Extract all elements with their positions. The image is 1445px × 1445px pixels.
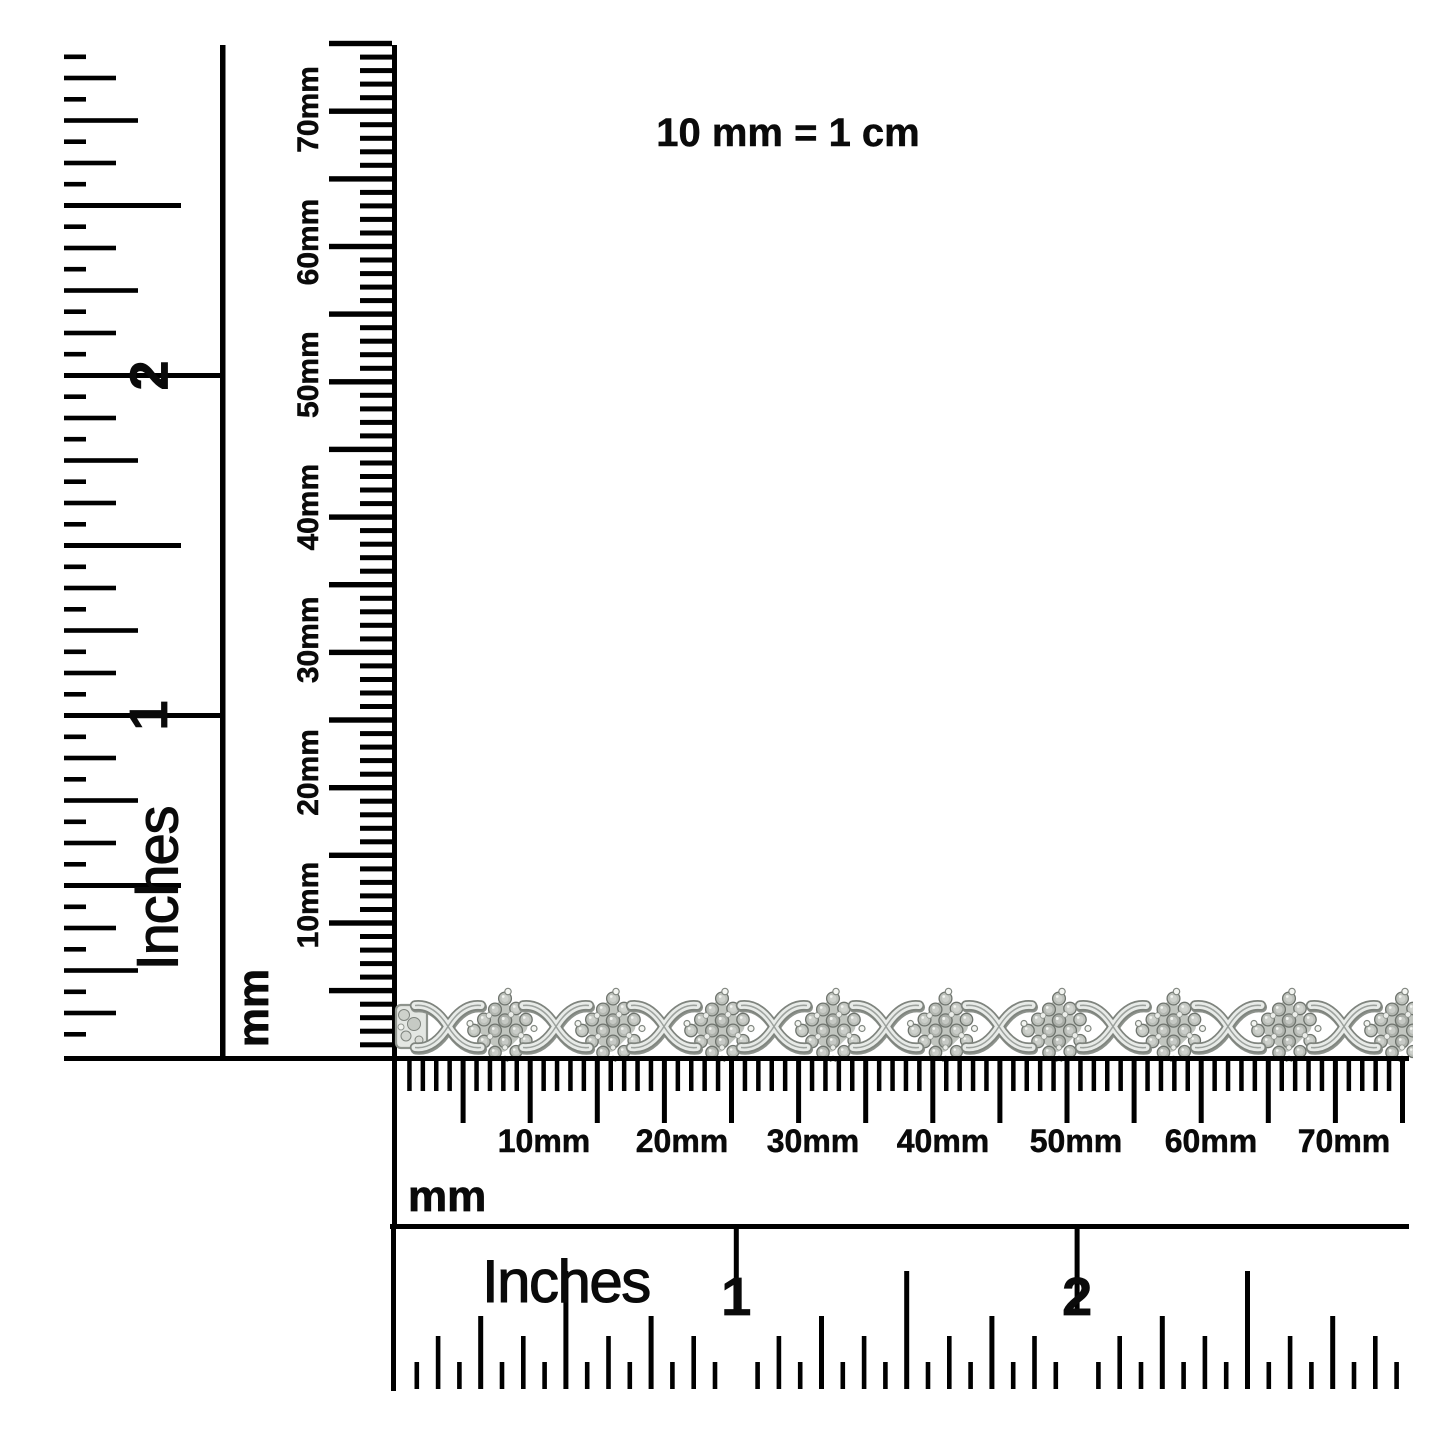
svg-text:50mm: 50mm (1030, 1123, 1123, 1159)
svg-text:20mm: 20mm (636, 1123, 729, 1159)
svg-text:Inches: Inches (125, 807, 190, 971)
svg-text:30mm: 30mm (767, 1123, 860, 1159)
svg-text:mm: mm (408, 1172, 486, 1221)
svg-text:10 mm = 1 cm: 10 mm = 1 cm (656, 111, 920, 155)
svg-text:10mm: 10mm (292, 862, 325, 949)
svg-text:50mm: 50mm (292, 331, 325, 418)
svg-text:10mm: 10mm (498, 1123, 591, 1159)
svg-text:2: 2 (1062, 1267, 1092, 1327)
svg-text:1: 1 (119, 700, 179, 730)
svg-text:30mm: 30mm (292, 596, 325, 683)
svg-text:1: 1 (721, 1267, 751, 1327)
svg-text:20mm: 20mm (292, 729, 325, 816)
svg-text:40mm: 40mm (897, 1123, 990, 1159)
svg-text:70mm: 70mm (292, 66, 325, 153)
svg-text:2: 2 (119, 360, 179, 390)
svg-text:60mm: 60mm (1165, 1123, 1258, 1159)
svg-text:60mm: 60mm (292, 199, 325, 286)
svg-text:70mm: 70mm (1298, 1123, 1391, 1159)
svg-text:Inches: Inches (482, 1248, 650, 1315)
svg-text:40mm: 40mm (292, 464, 325, 551)
svg-text:mm: mm (229, 969, 278, 1047)
